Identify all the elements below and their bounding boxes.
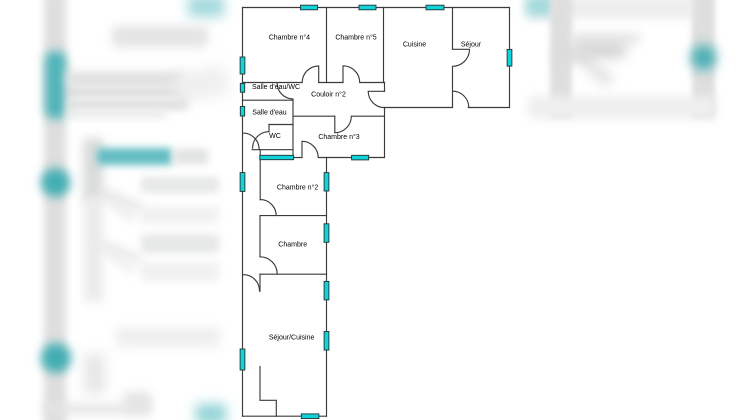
svg-text:Chambre n°5: Chambre n°5 — [335, 33, 376, 41]
svg-text:Cuisine: Cuisine — [403, 42, 426, 49]
svg-text:Chambre n°3: Chambre n°3 — [318, 133, 359, 141]
svg-text:Salle d'eau/WC: Salle d'eau/WC — [252, 84, 300, 91]
svg-text:Séjour/Cuisine: Séjour/Cuisine — [269, 334, 315, 341]
svg-text:Couloir n°2: Couloir n°2 — [311, 91, 346, 99]
svg-text:Chambre: Chambre — [278, 241, 307, 248]
svg-text:Séjour: Séjour — [461, 42, 482, 49]
svg-text:Chambre n°2: Chambre n°2 — [277, 184, 318, 192]
svg-text:WC: WC — [269, 133, 281, 140]
svg-text:Salle d'eau: Salle d'eau — [252, 109, 287, 116]
svg-text:Chambre n°4: Chambre n°4 — [269, 33, 310, 41]
